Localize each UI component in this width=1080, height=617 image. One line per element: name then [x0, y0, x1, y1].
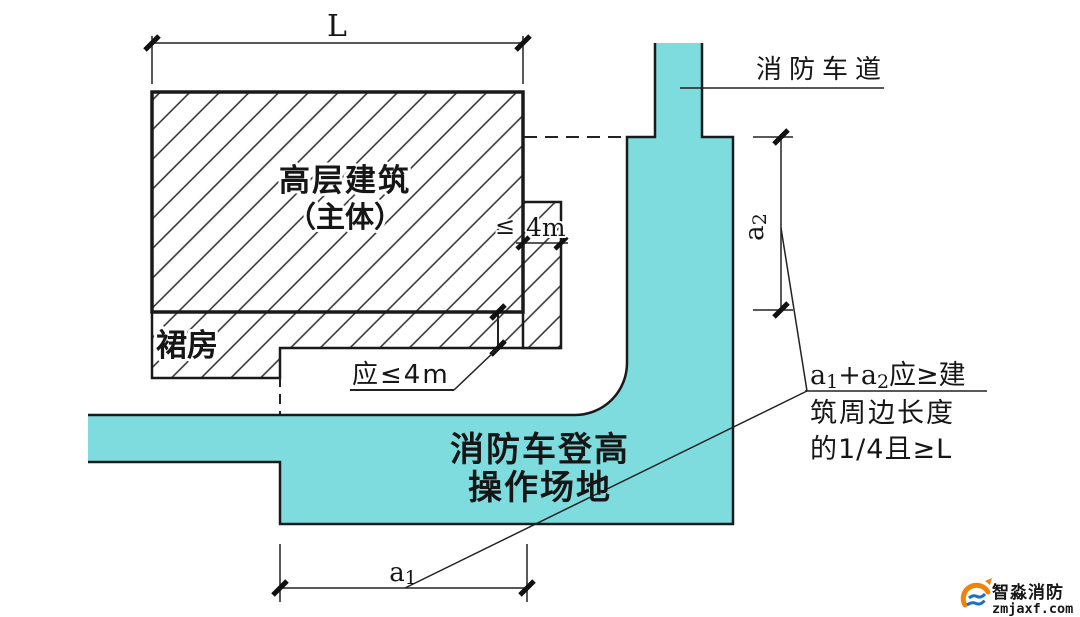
dim-4m-label: 4m — [526, 213, 566, 242]
podium-depth-label: 应≤4m — [352, 360, 450, 390]
annotation-line1: a1+a2应≥建 — [810, 360, 966, 393]
brand-url: zmjaxf.com — [992, 601, 1073, 617]
annotation-line2: 筑周边长度 — [810, 398, 955, 429]
dim-L-label: L — [327, 9, 347, 44]
operation-site-label-line2: 操作场地 — [468, 468, 612, 508]
dim-4m-lte-symbol: ≤ — [495, 212, 515, 240]
operation-site-label-line1: 消防车登高 — [450, 430, 630, 470]
fire-lane-callout: 消防车道 — [680, 55, 888, 88]
main-building-label-line2: （主体） — [287, 200, 403, 234]
podium-label: 裙房 — [156, 328, 218, 364]
brand-logo-icon — [963, 578, 992, 605]
main-building-label-line1: 高层建筑 — [279, 163, 411, 199]
diagram-canvas: L a2 a1 ≤ 4m 应≤4m 消防车道 — [0, 0, 1080, 617]
site-logo: 智淼消防 zmjaxf.com — [963, 578, 1073, 617]
dimension-L: L — [145, 9, 530, 84]
podium-depth-leader-diagonal — [454, 349, 497, 390]
dim-a2-label: a2 — [740, 213, 771, 241]
annotation-line3: 的1/4且≥L — [810, 434, 952, 465]
dimension-a1: a1 — [273, 544, 534, 602]
fire-lane-label: 消防车道 — [756, 55, 888, 85]
brand-name: 智淼消防 — [992, 582, 1064, 603]
dimension-a2: a2 — [740, 130, 793, 317]
fire-access-diagram: L a2 a1 ≤ 4m 应≤4m 消防车道 — [0, 0, 1080, 617]
